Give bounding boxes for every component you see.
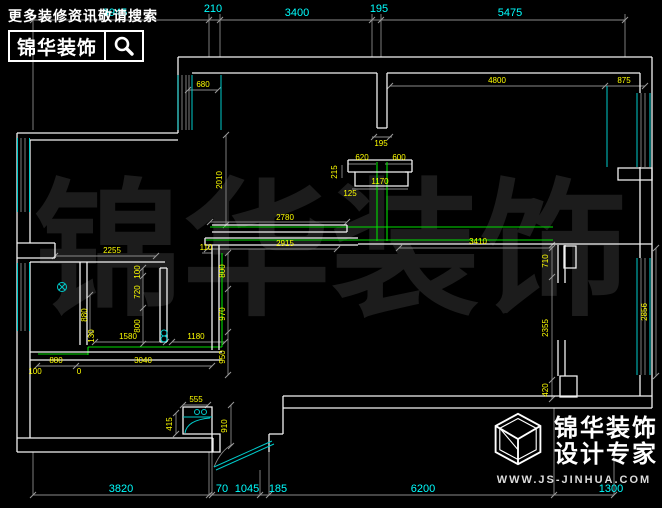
dimension-label: 1170 [371,177,389,186]
dimension-label: 70 [216,483,228,495]
dimension-label: 100 [133,265,142,279]
cad-floor-plan-screenshot: 锦 华 装 饰 [0,0,662,508]
dimension-label: 100 [28,367,42,376]
dimension-label: 3400 [285,7,309,19]
dimension-label: 880 [80,308,89,322]
dimension-label: 195 [374,139,388,148]
light-symbol [58,283,67,292]
dimension-label: 2780 [276,213,294,222]
dimension-label: 555 [189,395,203,404]
dimension-label: 800 [218,264,227,278]
dimension-label: 210 [204,3,222,15]
dimension-label: 195 [370,3,388,15]
dimension-label: 1180 [187,332,205,341]
dimension-label: 0 [77,367,82,376]
dimension-label: 800 [133,319,142,333]
outlet-symbol [161,330,167,342]
entry-door-leaf [214,441,274,470]
dimension-label: 2010 [215,171,224,189]
dimension-label: 880 [49,356,63,365]
brand-website: WWW.JS-JINHUA.COM [490,474,658,486]
dimension-label: 415 [165,417,174,431]
brand-name: 锦华装饰 [554,416,658,441]
dimension-label: 970 [218,307,227,321]
dimension-label: 130 [87,329,96,343]
bottom-right-brand-block: 锦华装饰 设计专家 WWW.JS-JINHUA.COM [490,411,658,486]
dimension-label: 125 [343,189,357,198]
brand-search-box: 锦华装饰 [8,30,144,62]
dimension-label: 1045 [235,483,259,495]
dimension-label: 3040 [134,356,152,365]
brand-name: 锦华装饰 [10,33,104,60]
search-hint-text: 更多装修资讯敬请搜索 [8,6,158,26]
dimension-label: 950 [218,350,227,364]
dimension-label: 3820 [109,483,133,495]
dimension-label: 875 [617,76,631,85]
dimension-label: 420 [541,383,550,397]
dimension-label: 5475 [498,7,522,19]
dimension-label: 910 [220,419,229,433]
brand-tagline: 设计专家 [554,442,658,467]
wiring-lines [38,162,553,355]
dimension-label: 600 [392,153,406,162]
cube-logo-icon [490,411,546,472]
dimension-label: 110 [200,243,213,252]
dimension-label: 2915 [276,239,294,248]
dimension-label: 1580 [119,332,137,341]
dimension-label: 2255 [103,246,121,255]
dimension-label: 720 [133,285,142,299]
dimension-label: 2856 [640,303,649,321]
dimension-label: 6200 [411,483,435,495]
entry-cabinet [183,417,212,433]
dimension-label: 215 [330,165,339,179]
magnifier-icon [106,35,142,57]
top-left-brand-block: 更多装修资讯敬请搜索 锦华装饰 [8,6,158,62]
dimension-label: 710 [541,254,550,268]
dimension-label: 680 [196,80,210,89]
dimension-label: 2355 [541,319,550,337]
dimension-label: 620 [355,153,369,162]
dimension-label: 4800 [488,76,506,85]
dimension-label: 185 [269,483,287,495]
dimension-label: 3410 [469,237,487,246]
